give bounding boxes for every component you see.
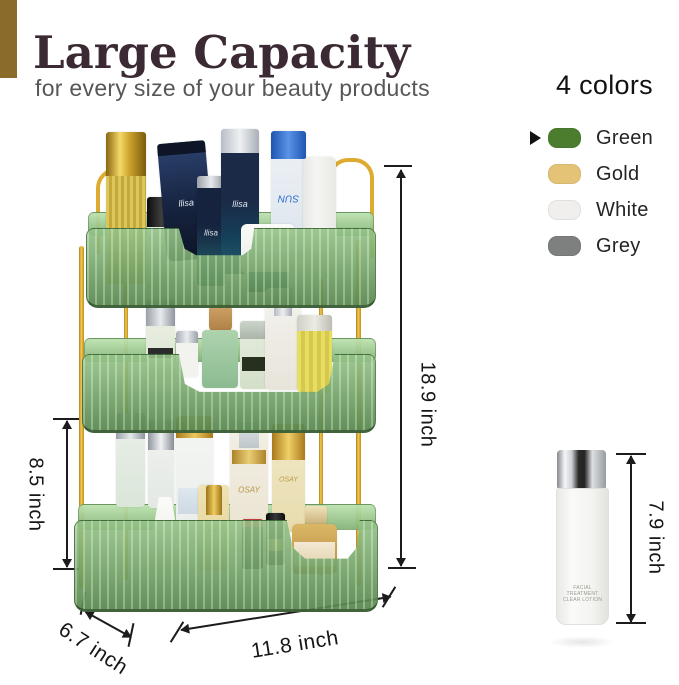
dark-pump-bottle-cap [221,129,259,153]
cork-cap [209,304,232,332]
dark-pump-bottle-brand-text: llisa [221,199,259,209]
gold-cap-bottle-cap [106,132,146,176]
mini-bottle-cap [176,331,198,343]
navy-tube-cap [157,140,206,156]
gold-perfume-cap [305,506,327,524]
cork-bottle [202,330,238,388]
frosted-bottle-2 [148,420,174,508]
osay-pump-bottle-label-band [232,450,266,464]
green-perfume [240,321,268,389]
product-infographic: Large Capacity for every size of your be… [0,0,679,685]
osay-tall-bottle-brand-text: OSAY [272,477,305,484]
gold-serum-pump-cap [206,485,222,515]
amber-perfume [297,315,332,393]
osay-pump-bottle-brand-text: OSAY [230,485,268,494]
amber-perfume-cap [297,315,332,331]
green-perfume-label-band [242,357,266,371]
green-perfume-cap [240,321,268,339]
sun-spray-can-brand-text: SUN [271,192,306,203]
sun-spray-can-cap [271,131,306,159]
